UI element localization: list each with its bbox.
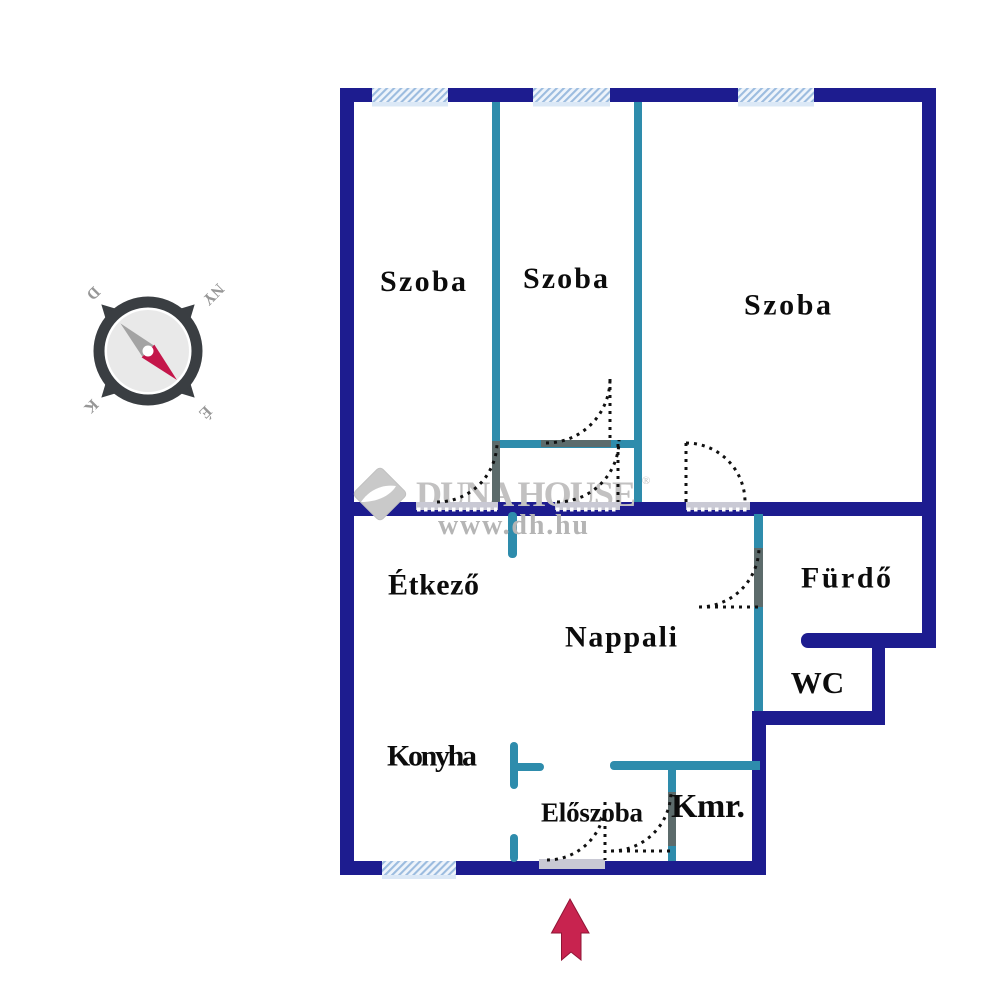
- svg-text:Fürdő: Fürdő: [801, 562, 891, 595]
- svg-text:WC: WC: [791, 665, 844, 700]
- svg-text:Szoba: Szoba: [523, 262, 608, 295]
- svg-text:Étkező: Étkező: [388, 569, 479, 602]
- svg-text:Szoba: Szoba: [380, 265, 466, 298]
- svg-text:Előszoba: Előszoba: [541, 798, 644, 828]
- svg-text:®: ®: [642, 475, 650, 487]
- svg-text:www.dh.hu: www.dh.hu: [438, 510, 588, 541]
- svg-text:Szoba: Szoba: [744, 289, 831, 322]
- svg-text:Konyha: Konyha: [387, 740, 477, 773]
- svg-text:Kmr.: Kmr.: [671, 788, 745, 825]
- svg-text:Nappali: Nappali: [565, 621, 677, 654]
